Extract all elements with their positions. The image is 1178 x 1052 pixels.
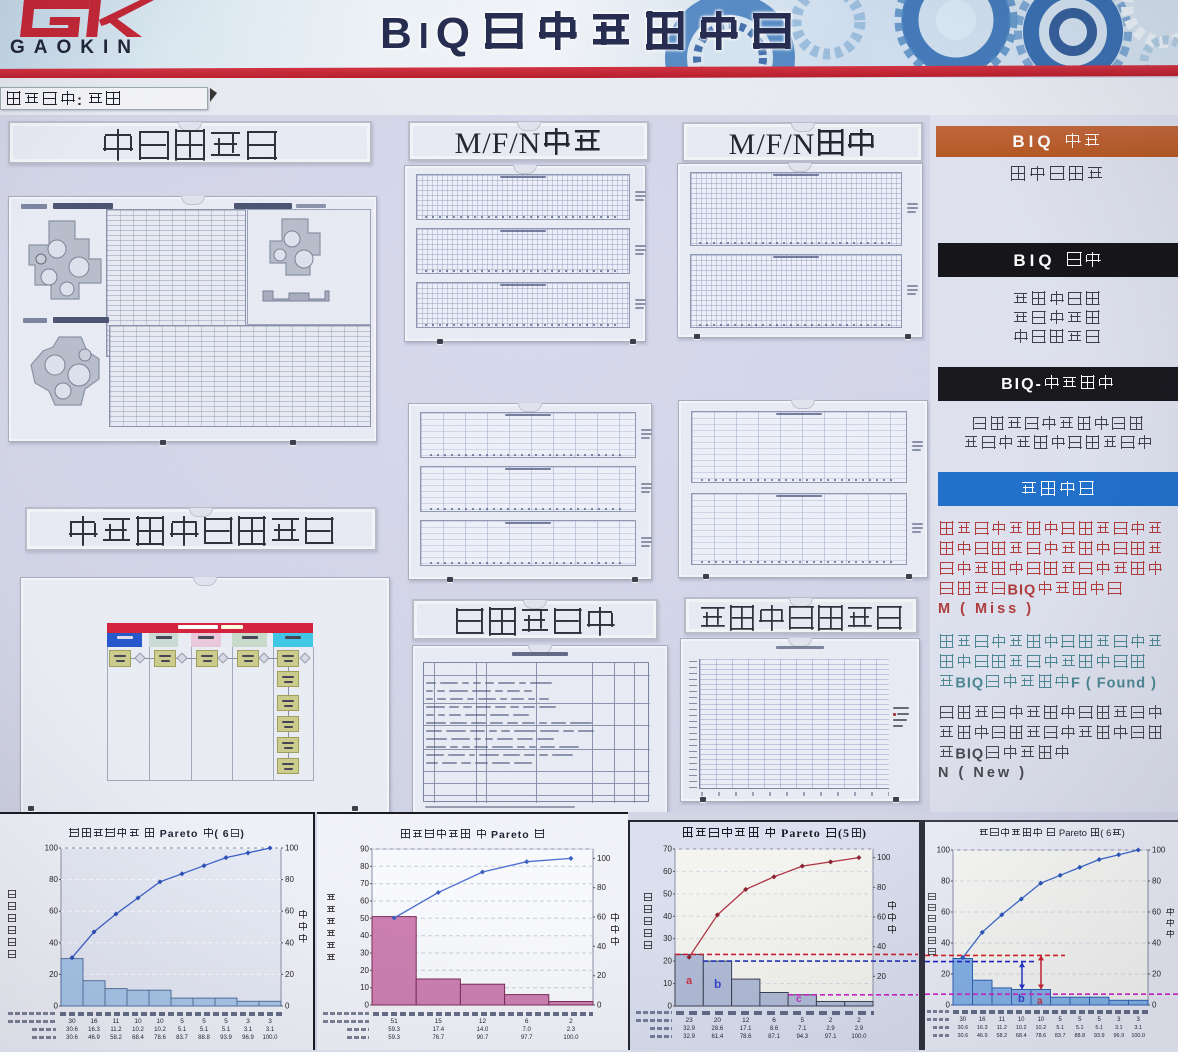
svg-text:50: 50 [360,914,369,923]
svg-text:12: 12 [479,1018,487,1025]
svg-text:30: 30 [663,934,672,943]
svg-text:94.3: 94.3 [796,1034,808,1040]
svg-text:0: 0 [54,1002,59,1011]
svg-text:58.2: 58.2 [110,1035,122,1041]
svg-text:20: 20 [663,957,672,966]
svg-text:60: 60 [663,867,672,876]
svg-text:59.3: 59.3 [388,1027,400,1033]
svg-text:20: 20 [941,970,950,979]
svg-text:10.2: 10.2 [1016,1025,1027,1031]
svg-text:5.1: 5.1 [1076,1025,1084,1031]
svg-text:c: c [796,994,802,1005]
svg-text:100: 100 [937,846,951,855]
svg-text:10: 10 [134,1018,142,1025]
svg-text:100: 100 [1152,846,1166,855]
svg-text:100: 100 [285,844,299,853]
svg-text:11.2: 11.2 [110,1027,122,1033]
svg-text:61.4: 61.4 [712,1034,724,1040]
svg-text:100: 100 [597,854,611,863]
svg-text:46.9: 46.9 [88,1035,100,1041]
svg-text:0: 0 [285,1002,290,1011]
svg-text:5: 5 [800,1017,804,1024]
svg-text:100.0: 100.0 [1131,1033,1145,1039]
svg-text:0: 0 [597,1001,602,1010]
svg-text:60: 60 [597,913,606,922]
svg-text:17.1: 17.1 [740,1026,752,1032]
svg-text:20: 20 [1152,970,1161,979]
svg-text:40: 40 [49,938,58,947]
svg-text:a: a [686,975,693,987]
svg-text:30.6: 30.6 [957,1025,968,1031]
svg-text:10: 10 [360,983,369,992]
svg-text:10: 10 [663,979,672,988]
svg-text:17.4: 17.4 [432,1027,444,1033]
svg-text:60: 60 [285,907,294,916]
svg-text:80: 80 [1152,877,1161,886]
svg-text:14.0: 14.0 [477,1027,489,1033]
svg-text:0: 0 [946,1001,951,1010]
svg-text:32.9: 32.9 [683,1026,695,1032]
svg-text:30: 30 [68,1018,76,1025]
svg-text:100.0: 100.0 [262,1035,278,1041]
svg-text:46.9: 46.9 [977,1033,988,1039]
svg-text:16: 16 [90,1018,98,1025]
svg-text:11: 11 [999,1017,1006,1023]
svg-text:10.2: 10.2 [154,1027,166,1033]
svg-text:80: 80 [941,877,950,886]
svg-text:80: 80 [597,883,606,892]
svg-text:11: 11 [113,1018,120,1025]
svg-text:97.7: 97.7 [521,1035,533,1041]
svg-text:3.1: 3.1 [266,1027,275,1033]
svg-text:5.1: 5.1 [1056,1025,1064,1031]
svg-text:3: 3 [1137,1017,1141,1023]
svg-text:7.0: 7.0 [523,1027,532,1033]
svg-text:40: 40 [285,938,294,947]
svg-text:6: 6 [525,1018,529,1025]
svg-text:80: 80 [49,875,58,884]
svg-text:80: 80 [360,862,369,871]
svg-text:59.3: 59.3 [388,1035,400,1041]
svg-text:5: 5 [1059,1017,1063,1023]
svg-text:30.6: 30.6 [66,1027,78,1033]
svg-text:6: 6 [772,1017,776,1024]
svg-text:0: 0 [668,1002,673,1011]
svg-text:88.8: 88.8 [198,1035,210,1041]
svg-text:32.9: 32.9 [683,1034,695,1040]
svg-text:20: 20 [360,966,369,975]
svg-text:8.6: 8.6 [770,1026,779,1032]
svg-text:5: 5 [1098,1017,1102,1023]
svg-text:16.3: 16.3 [977,1025,988,1031]
svg-text:b: b [1018,993,1025,1005]
svg-text:5.1: 5.1 [1095,1025,1103,1031]
svg-text:20: 20 [877,972,886,981]
svg-text:88.8: 88.8 [1074,1033,1085,1039]
svg-text:2: 2 [829,1017,833,1024]
svg-text:40: 40 [1152,939,1161,948]
svg-text:40: 40 [360,931,369,940]
svg-text:5: 5 [224,1018,228,1025]
svg-text:96.9: 96.9 [242,1035,254,1041]
svg-text:20: 20 [714,1017,722,1024]
svg-text:7.1: 7.1 [798,1026,807,1032]
svg-text:GAOKIN: GAOKIN [10,37,140,56]
svg-text:2.9: 2.9 [826,1026,835,1032]
svg-text:3: 3 [1117,1017,1121,1023]
svg-text:76.7: 76.7 [432,1035,444,1041]
svg-text:30: 30 [959,1017,966,1023]
svg-text:a: a [1037,996,1043,1007]
svg-text:83.7: 83.7 [176,1035,188,1041]
svg-text:68.4: 68.4 [132,1035,144,1041]
svg-text:70: 70 [360,879,369,888]
svg-text:10.2: 10.2 [132,1027,144,1033]
svg-text:15: 15 [435,1018,443,1025]
svg-text:20: 20 [285,970,294,979]
svg-text:97.1: 97.1 [825,1034,837,1040]
svg-text:20: 20 [597,971,606,980]
svg-text:40: 40 [877,942,886,951]
svg-text:11.2: 11.2 [997,1025,1007,1031]
svg-text:93.9: 93.9 [1094,1033,1105,1039]
svg-text:100: 100 [877,853,891,862]
svg-text:10: 10 [1037,1017,1044,1023]
svg-text:3: 3 [268,1018,272,1025]
svg-text:5.1: 5.1 [222,1027,231,1033]
svg-text:3.1: 3.1 [244,1027,253,1033]
svg-text:5: 5 [1078,1017,1082,1023]
svg-text:78.6: 78.6 [740,1034,752,1040]
svg-text:12: 12 [742,1017,750,1024]
svg-text:78.6: 78.6 [1035,1033,1046,1039]
svg-text:30.6: 30.6 [66,1035,78,1041]
svg-text:58.2: 58.2 [996,1033,1007,1039]
svg-text:90.7: 90.7 [477,1035,489,1041]
svg-text:5.1: 5.1 [200,1027,209,1033]
svg-text:60: 60 [941,908,950,917]
svg-text:100.0: 100.0 [851,1034,867,1040]
svg-text:5: 5 [202,1018,206,1025]
svg-text:0: 0 [1152,1001,1157,1010]
svg-text:5.1: 5.1 [178,1027,187,1033]
svg-text:80: 80 [877,883,886,892]
svg-text:30: 30 [360,949,369,958]
svg-text:40: 40 [597,942,606,951]
svg-text:3.1: 3.1 [1134,1025,1142,1031]
svg-text:60: 60 [1152,908,1161,917]
svg-text:68.4: 68.4 [1016,1033,1027,1039]
svg-text:80: 80 [285,875,294,884]
svg-text:87.1: 87.1 [768,1034,780,1040]
svg-text:5: 5 [180,1018,184,1025]
svg-text:40: 40 [941,939,950,948]
svg-text:3.1: 3.1 [1115,1025,1123,1031]
svg-text:10.2: 10.2 [1035,1025,1046,1031]
svg-text:40: 40 [663,912,672,921]
svg-text:0: 0 [365,1001,370,1010]
svg-text:16.3: 16.3 [88,1027,100,1033]
svg-text:30.6: 30.6 [957,1033,968,1039]
svg-text:100.0: 100.0 [563,1035,579,1041]
svg-text:2.9: 2.9 [855,1026,864,1032]
svg-text:100: 100 [45,844,59,853]
svg-text:50: 50 [663,889,672,898]
svg-text:23: 23 [685,1017,693,1024]
svg-text:2.3: 2.3 [567,1027,576,1033]
svg-text:10: 10 [1018,1017,1025,1023]
svg-text:90: 90 [360,845,369,854]
svg-text:28.6: 28.6 [712,1026,724,1032]
svg-text:96.9: 96.9 [1113,1033,1124,1039]
svg-text:60: 60 [49,907,58,916]
svg-text:2: 2 [857,1017,861,1024]
svg-text:51: 51 [390,1018,398,1025]
svg-text:70: 70 [663,845,672,854]
svg-text:93.9: 93.9 [220,1035,232,1041]
svg-text:10: 10 [156,1018,164,1025]
svg-text:83.7: 83.7 [1055,1033,1066,1039]
svg-text:16: 16 [979,1017,986,1023]
svg-text:78.6: 78.6 [154,1035,166,1041]
svg-text:b: b [714,977,721,991]
svg-text:2: 2 [569,1018,573,1025]
svg-text:20: 20 [49,970,58,979]
svg-text:3: 3 [246,1018,250,1025]
svg-text:60: 60 [360,897,369,906]
